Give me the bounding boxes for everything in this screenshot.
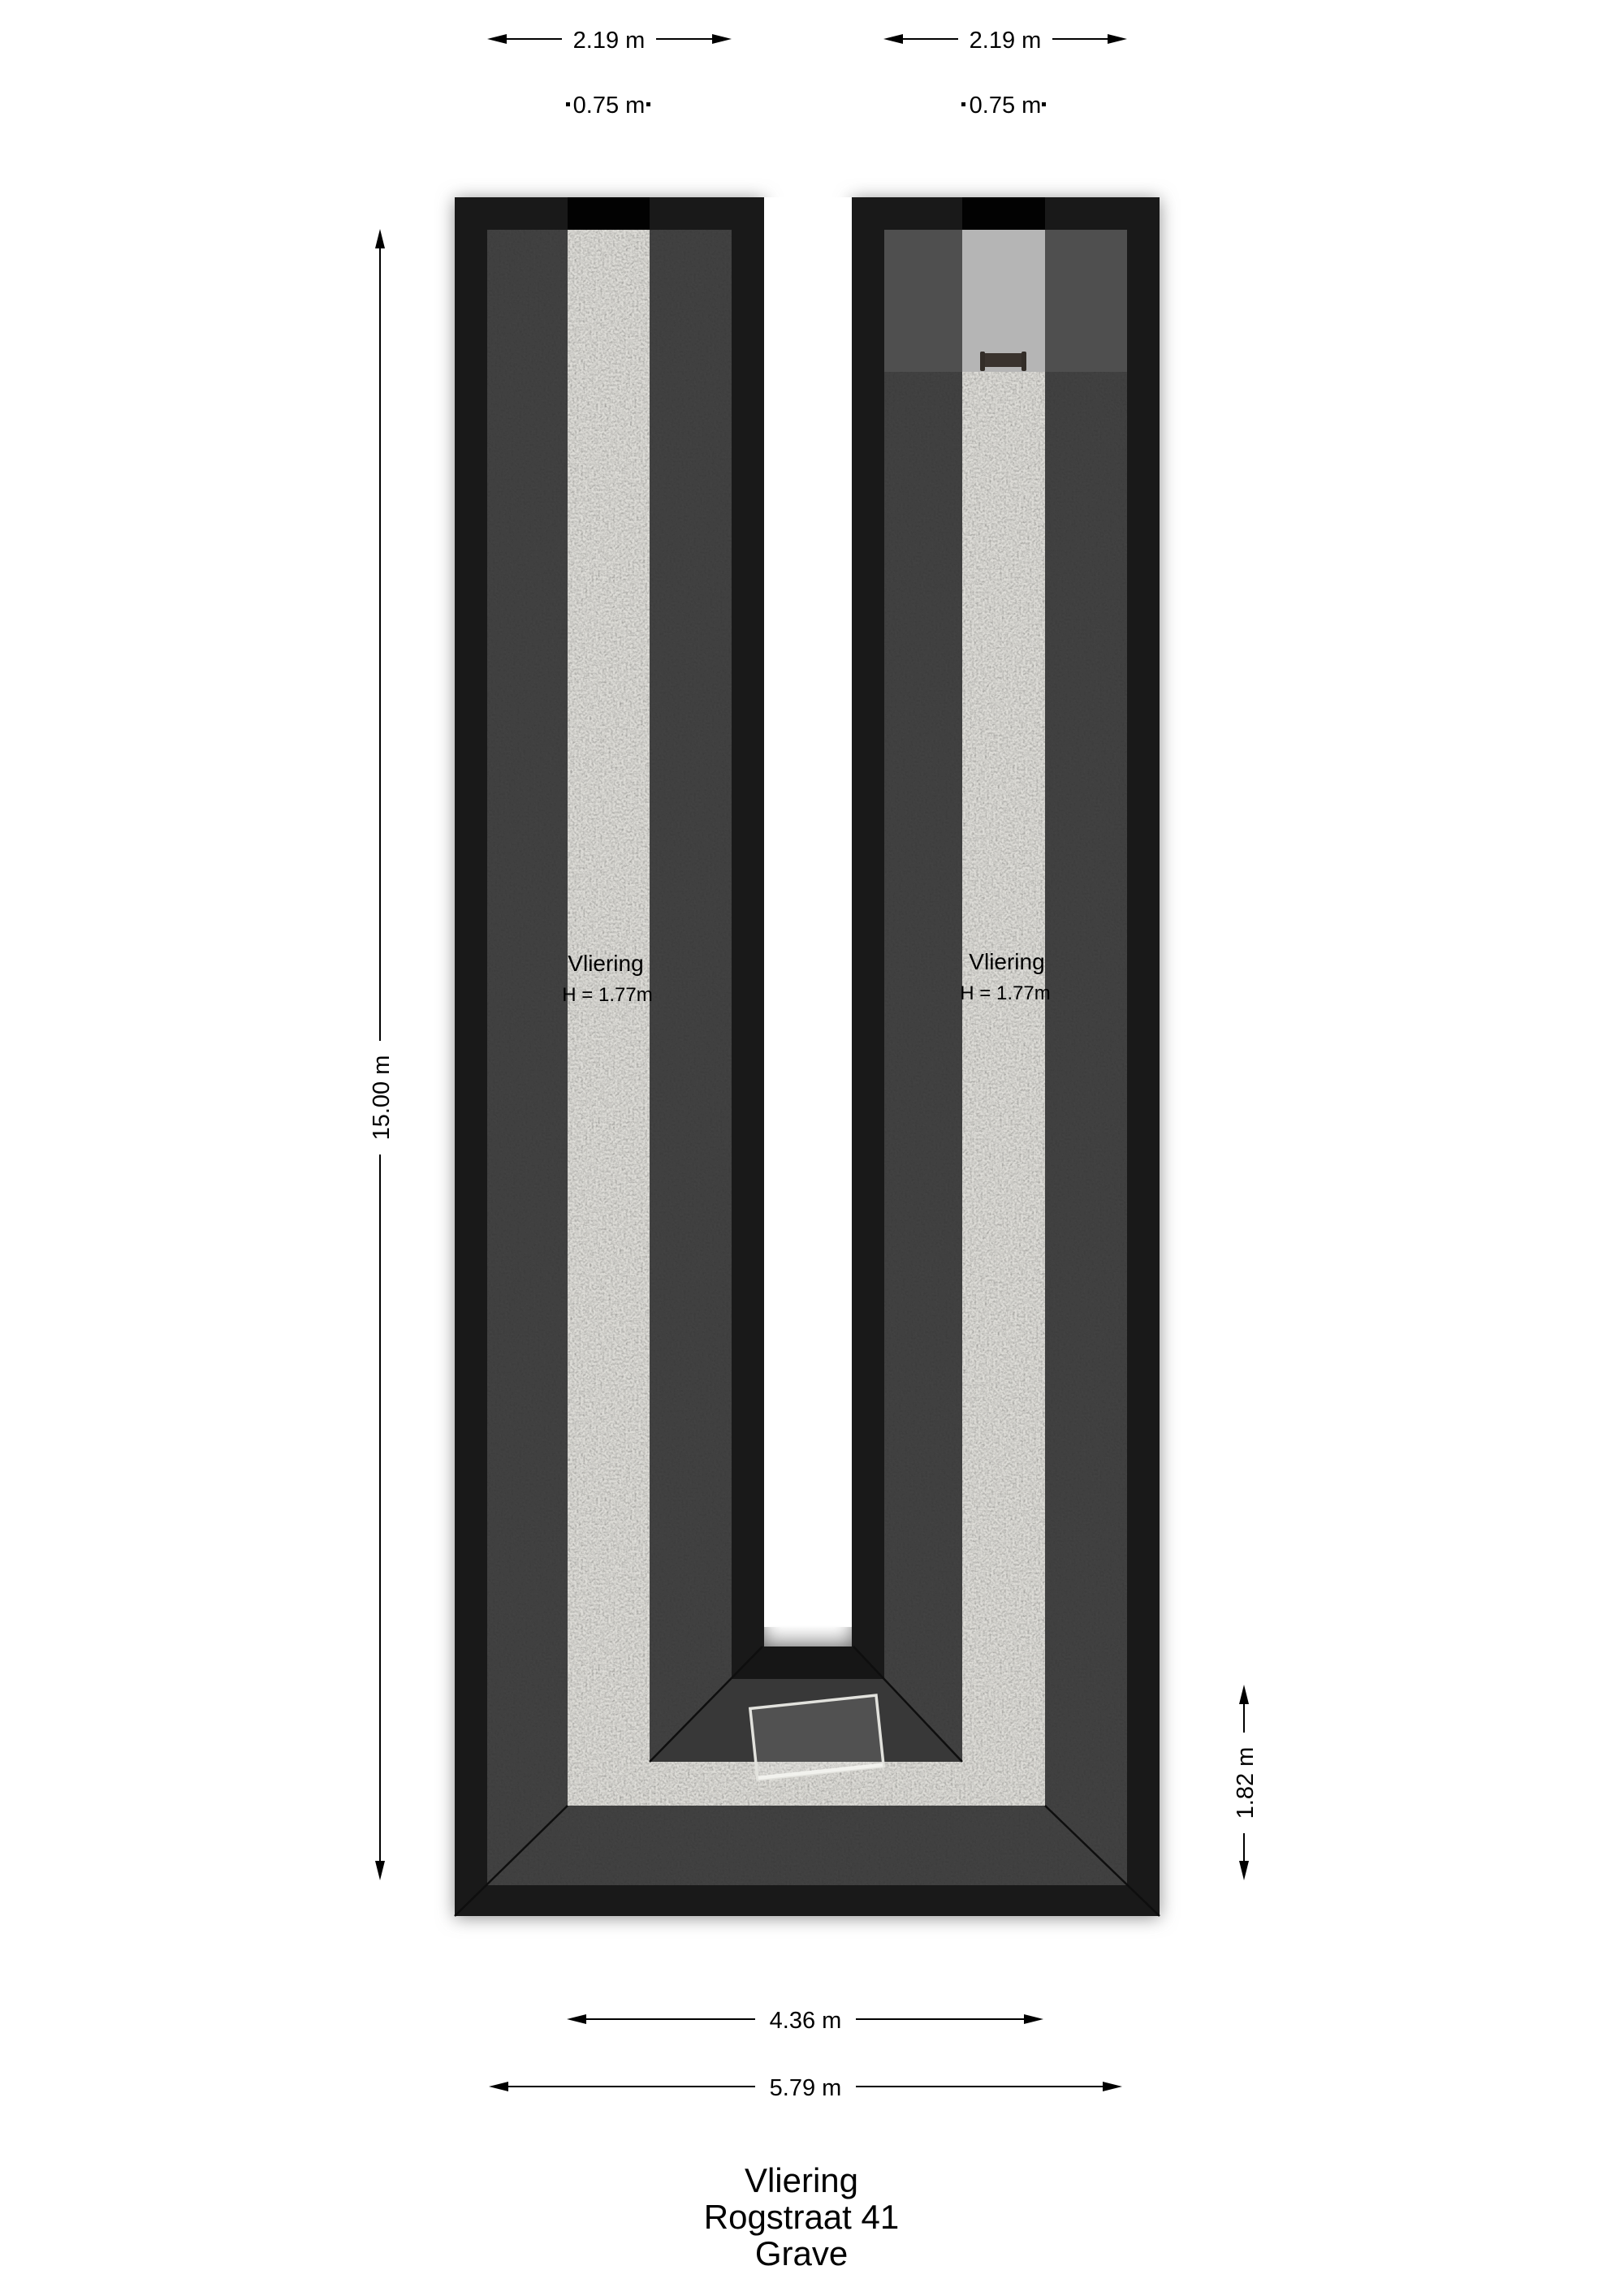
svg-text:Vliering: Vliering (745, 2161, 858, 2199)
svg-text:2.19 m: 2.19 m (573, 28, 646, 54)
svg-text:5.79 m: 5.79 m (770, 2075, 842, 2101)
svg-text:H = 1.77m: H = 1.77m (960, 982, 1050, 1004)
svg-text:Grave: Grave (755, 2234, 848, 2272)
svg-text:Vliering: Vliering (969, 949, 1044, 974)
svg-text:1.82 m: 1.82 m (1233, 1747, 1259, 1819)
svg-text:0.75 m: 0.75 m (970, 93, 1042, 119)
svg-text:15.00 m: 15.00 m (369, 1055, 395, 1141)
svg-text:H = 1.77m: H = 1.77m (562, 984, 652, 1006)
svg-text:2.19 m: 2.19 m (970, 28, 1042, 54)
svg-text:Vliering: Vliering (568, 951, 643, 976)
svg-text:Rogstraat 41: Rogstraat 41 (704, 2198, 899, 2236)
svg-text:0.75 m: 0.75 m (573, 93, 646, 119)
svg-text:4.36 m: 4.36 m (770, 2008, 842, 2034)
